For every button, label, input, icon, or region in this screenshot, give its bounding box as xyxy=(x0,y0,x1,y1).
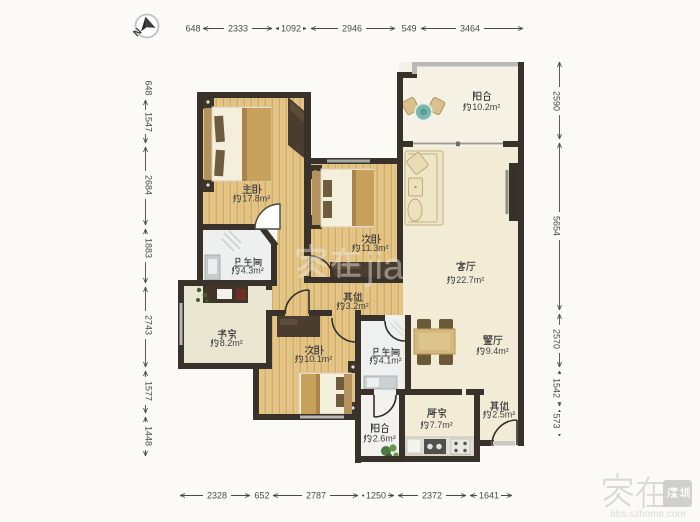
svg-text:549: 549 xyxy=(401,24,416,34)
svg-text:7.7m²: 7.7m² xyxy=(430,420,453,430)
svg-text:2333: 2333 xyxy=(228,24,248,34)
svg-text:1250: 1250 xyxy=(366,491,386,501)
svg-text:1547: 1547 xyxy=(144,112,154,132)
svg-text:3.2m²: 3.2m² xyxy=(346,301,369,311)
svg-text:648: 648 xyxy=(144,80,154,95)
svg-text:22.7m²: 22.7m² xyxy=(456,275,484,285)
svg-text:2.5m²: 2.5m² xyxy=(492,410,515,420)
svg-text:2787: 2787 xyxy=(306,491,326,501)
svg-text:9.4m²: 9.4m² xyxy=(486,346,509,356)
svg-text:3464: 3464 xyxy=(460,24,480,34)
svg-text:2570: 2570 xyxy=(552,329,562,349)
svg-text:1092: 1092 xyxy=(281,24,301,34)
svg-text:652: 652 xyxy=(254,491,269,501)
svg-text:2590: 2590 xyxy=(552,91,562,111)
svg-text:4.3m²: 4.3m² xyxy=(241,266,264,276)
svg-text:1448: 1448 xyxy=(144,426,154,446)
svg-text:jia.: jia. xyxy=(365,246,415,288)
svg-text:2372: 2372 xyxy=(422,491,442,501)
svg-text:2743: 2743 xyxy=(144,315,154,335)
svg-text:2.6m²: 2.6m² xyxy=(373,434,396,444)
svg-text:17.8m²: 17.8m² xyxy=(242,194,270,204)
svg-text:1883: 1883 xyxy=(144,238,154,258)
svg-text:573: 573 xyxy=(552,413,562,428)
svg-text:648: 648 xyxy=(185,24,200,34)
svg-text:8.2m²: 8.2m² xyxy=(220,338,243,348)
svg-text:1641: 1641 xyxy=(479,491,499,501)
svg-text:2946: 2946 xyxy=(342,24,362,34)
svg-text:10.1m²: 10.1m² xyxy=(304,354,332,364)
svg-text:10.2m²: 10.2m² xyxy=(472,102,500,112)
svg-text:2684: 2684 xyxy=(144,175,154,195)
svg-text:bbs.szhome.com: bbs.szhome.com xyxy=(610,509,686,520)
svg-text:1577: 1577 xyxy=(144,381,154,401)
svg-text:2328: 2328 xyxy=(207,491,227,501)
svg-text:1542: 1542 xyxy=(552,378,562,398)
svg-text:4.1m²: 4.1m² xyxy=(379,356,402,366)
svg-text:5654: 5654 xyxy=(552,216,562,236)
